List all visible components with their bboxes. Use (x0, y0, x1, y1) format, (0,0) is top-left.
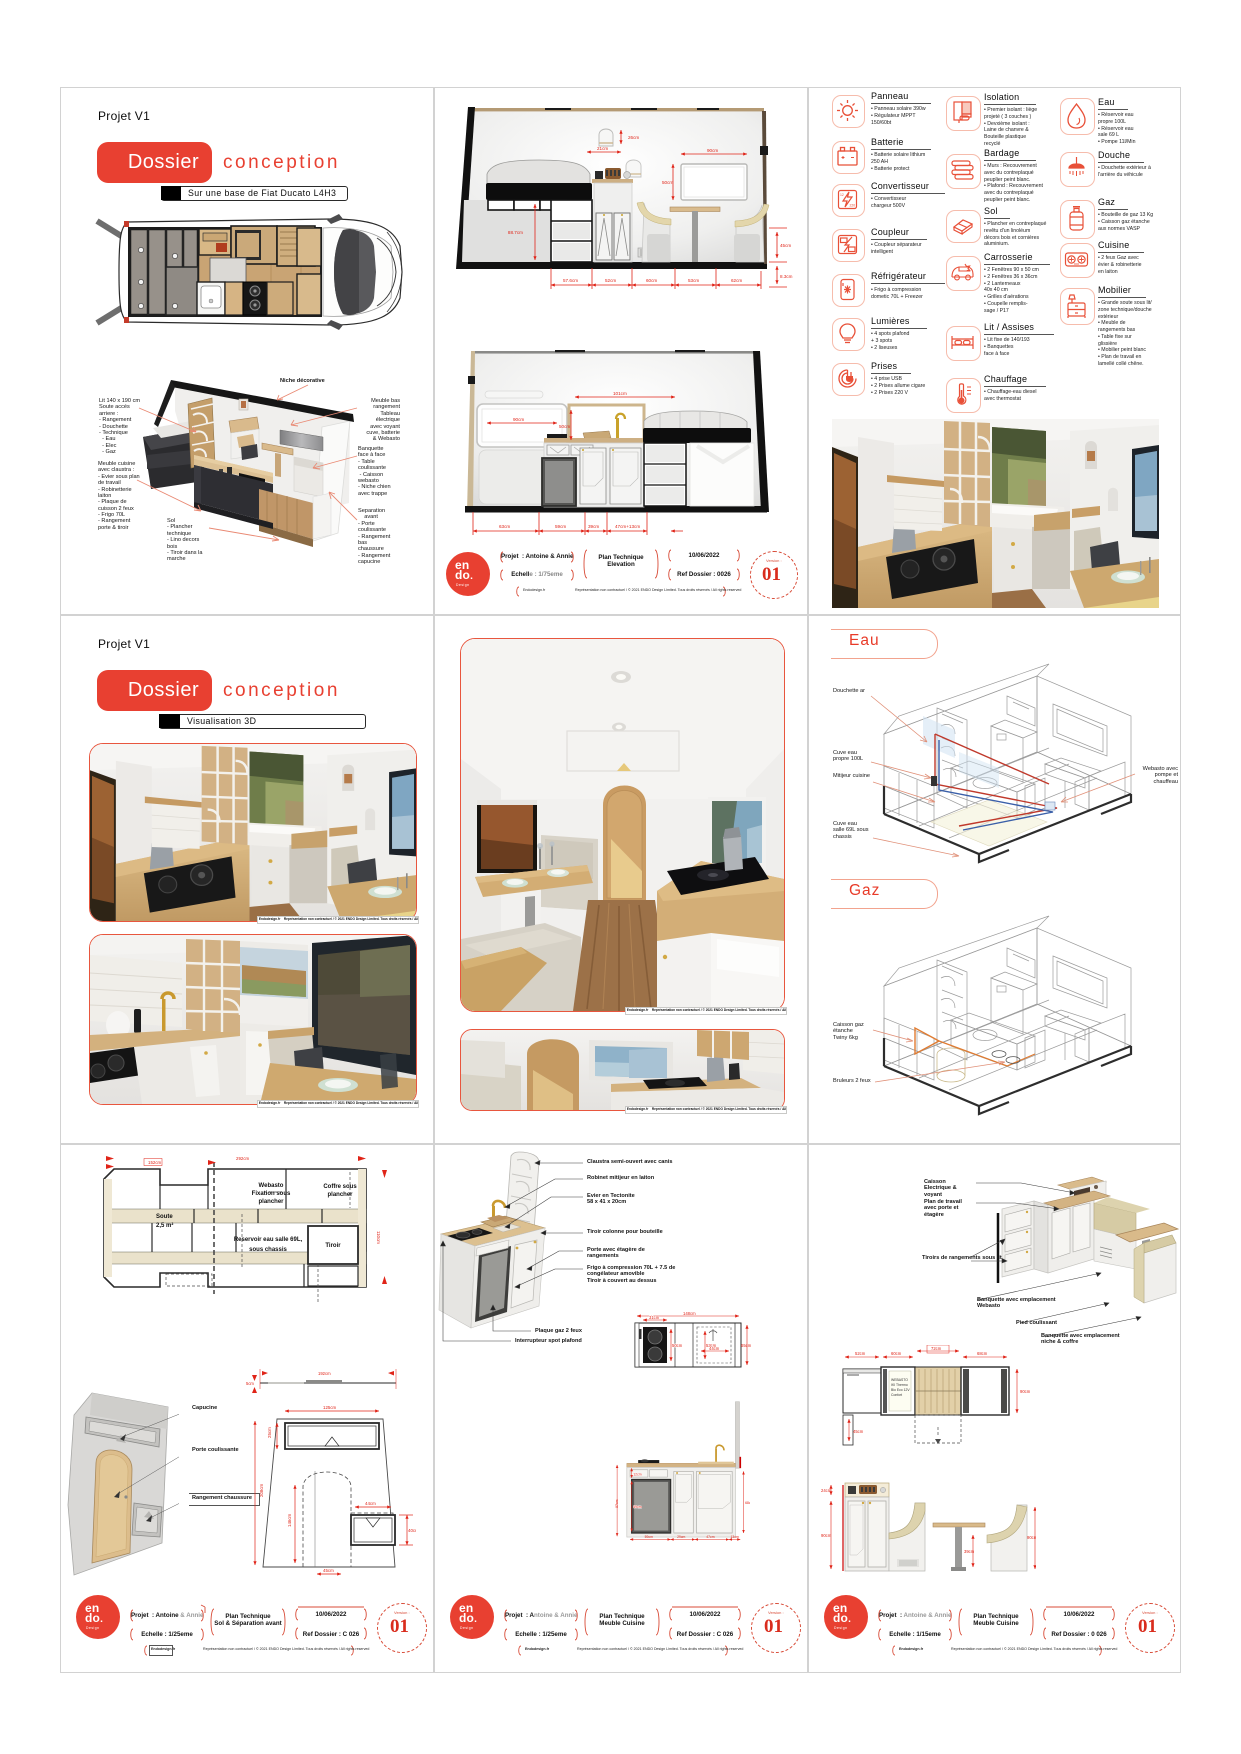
svg-text:220: 220 (850, 204, 856, 208)
svg-text:12: 12 (840, 193, 844, 197)
